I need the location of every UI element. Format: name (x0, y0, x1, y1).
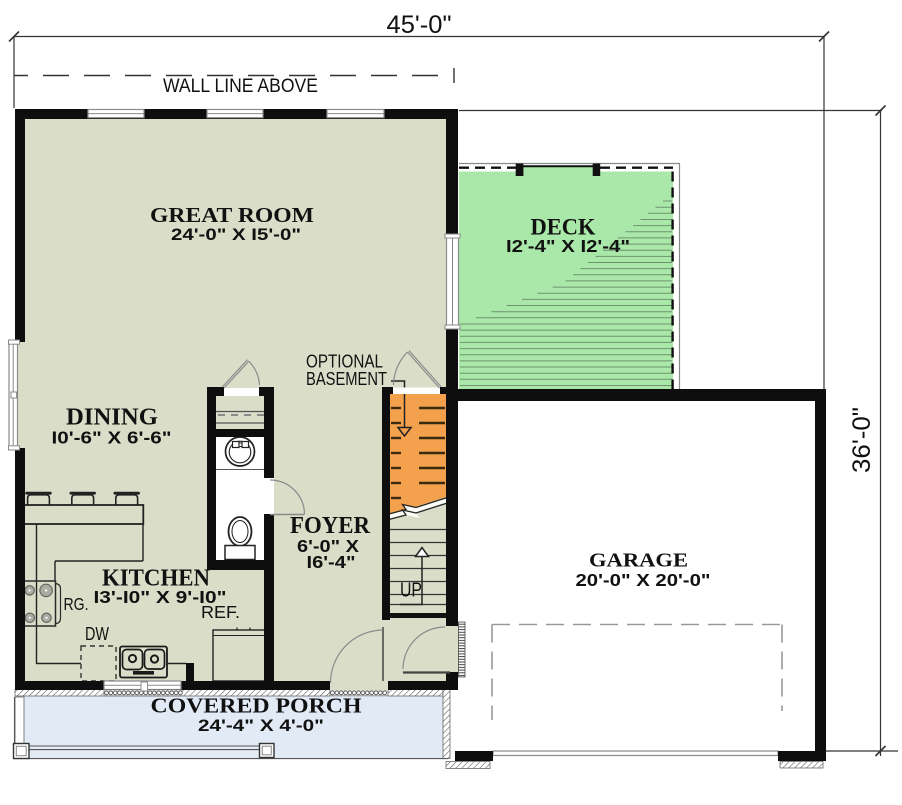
svg-text:BASEMENT: BASEMENT (306, 368, 387, 389)
svg-text:I6'-4": I6'-4" (307, 552, 356, 572)
svg-text:COVERED PORCH: COVERED PORCH (151, 694, 362, 718)
svg-text:RG.: RG. (64, 594, 89, 614)
svg-text:DINING: DINING (66, 404, 158, 431)
svg-text:WALL LINE ABOVE: WALL LINE ABOVE (163, 76, 318, 97)
svg-text:36'-0": 36'-0" (848, 407, 876, 473)
svg-text:24'-0" X I5'-0": 24'-0" X I5'-0" (171, 225, 301, 244)
svg-text:UP: UP (400, 580, 422, 602)
svg-text:I0'-6" X 6'-6": I0'-6" X 6'-6" (52, 428, 172, 448)
svg-text:DW: DW (85, 624, 109, 644)
svg-text:24'-4" X 4'-0": 24'-4" X 4'-0" (198, 716, 324, 735)
svg-text:GARAGE: GARAGE (589, 550, 688, 572)
svg-text:45'-0": 45'-0" (387, 11, 452, 39)
svg-text:GREAT ROOM: GREAT ROOM (150, 203, 314, 227)
svg-text:20'-0" X 20'-0": 20'-0" X 20'-0" (576, 570, 711, 590)
svg-text:I2'-4" X I2'-4": I2'-4" X I2'-4" (506, 236, 630, 256)
svg-text:REF.: REF. (201, 602, 240, 622)
